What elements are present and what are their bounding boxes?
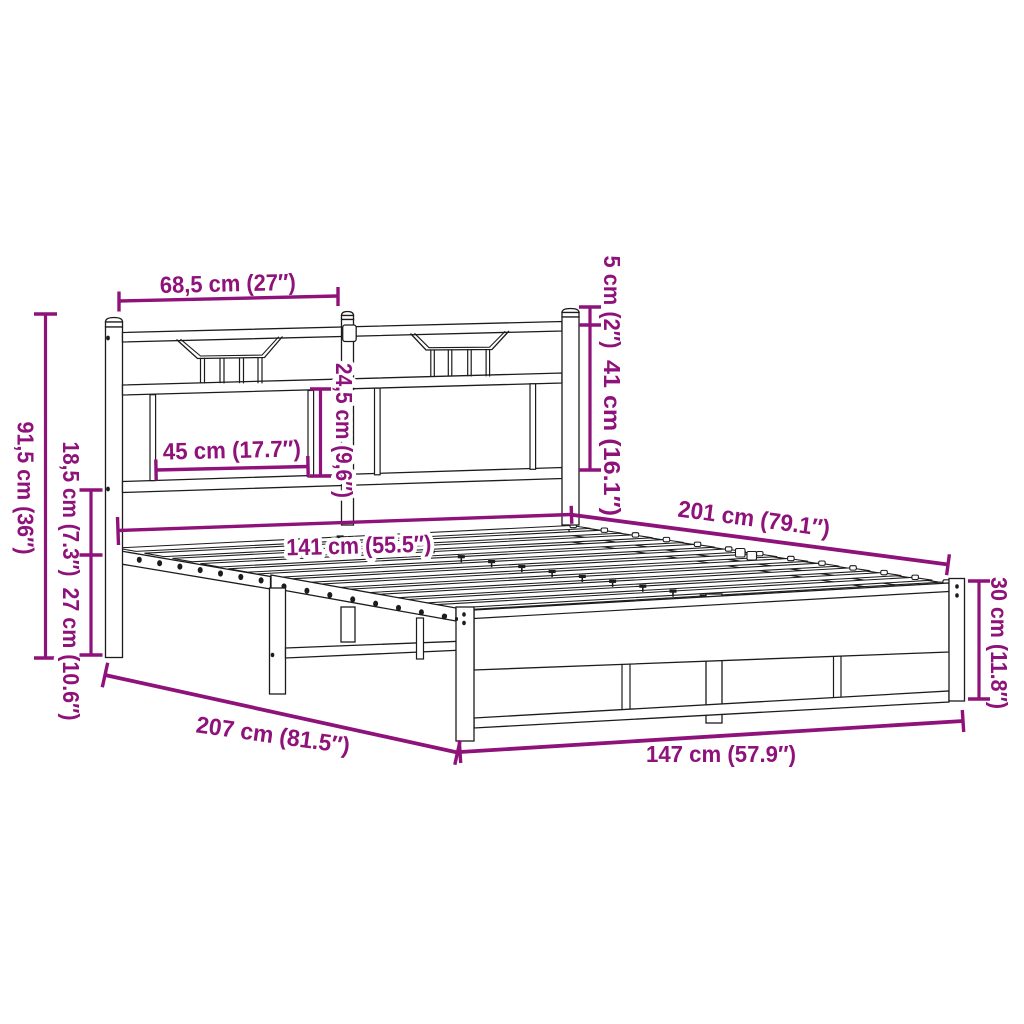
svg-text:30 cm (11.8″): 30 cm (11.8″)	[986, 577, 1012, 709]
svg-text:41 cm (16.1″): 41 cm (16.1″)	[599, 360, 625, 516]
svg-text:45 cm (17.7″): 45 cm (17.7″)	[163, 435, 302, 464]
svg-text:68,5 cm (27″): 68,5 cm (27″)	[160, 269, 297, 298]
svg-text:141 cm (55.5″): 141 cm (55.5″)	[286, 531, 432, 561]
svg-text:5 cm (2″): 5 cm (2″)	[599, 256, 625, 349]
svg-text:91,5 cm (36″): 91,5 cm (36″)	[13, 422, 39, 555]
svg-text:24,5 cm (9,6″): 24,5 cm (9,6″)	[331, 363, 357, 498]
svg-text:147 cm (57.9″): 147 cm (57.9″)	[646, 741, 796, 767]
